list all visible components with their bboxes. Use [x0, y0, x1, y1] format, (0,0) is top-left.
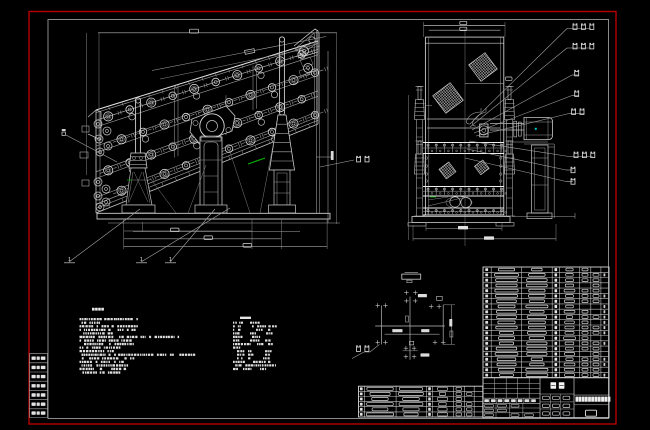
- svg-text:1: 1: [68, 257, 71, 263]
- svg-text:1: 1: [169, 257, 172, 263]
- svg-text:1: 1: [140, 257, 143, 263]
